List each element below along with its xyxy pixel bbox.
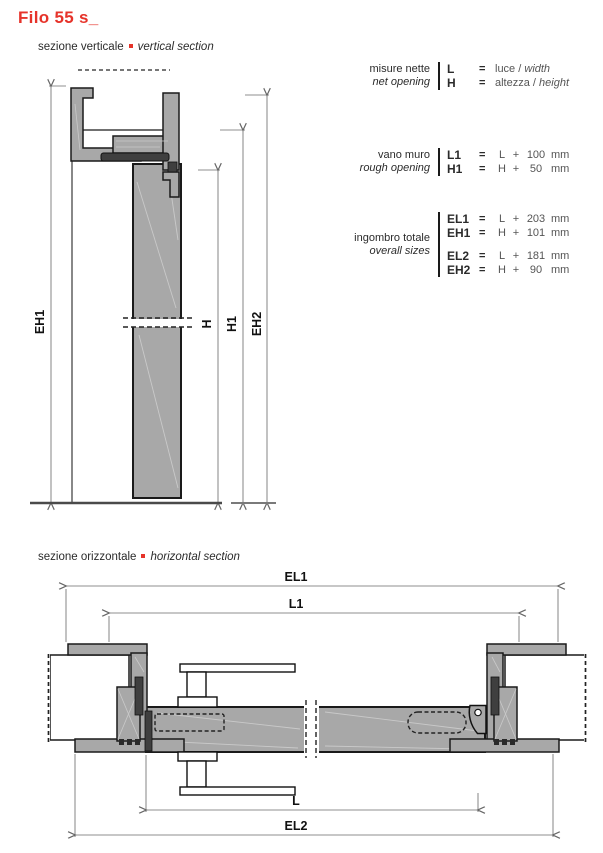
- dim-label-el1: EL1: [285, 570, 308, 584]
- track-section-bottom: [178, 752, 295, 795]
- vertical-section-caption: sezione verticalevertical section: [38, 41, 214, 53]
- section-bullet-icon: [141, 554, 145, 558]
- right-guide-notch: [494, 739, 499, 745]
- horizontal-section-label-it: sezione orizzontale: [38, 551, 136, 563]
- formula-amount: 181: [523, 249, 549, 263]
- equals-sign: =: [479, 148, 495, 162]
- formula-base: H: [495, 162, 509, 176]
- formula-op: +: [509, 249, 523, 263]
- measure-symbol: EL1: [447, 212, 479, 226]
- horizontal-section-caption: sezione orizzontalehorizontal section: [38, 551, 240, 563]
- dimension-h: [198, 170, 220, 503]
- horizontal-section-label-en: horizontal section: [150, 551, 240, 563]
- equals-sign: =: [479, 226, 495, 240]
- value-separator: /: [518, 63, 521, 75]
- formula-base: L: [495, 148, 509, 162]
- value-en: width: [524, 63, 550, 75]
- dimension-el2: [75, 754, 553, 837]
- formula-amount: 101: [523, 226, 549, 240]
- dim-label-h: H: [200, 319, 214, 328]
- vertical-section-label-en: vertical section: [138, 41, 214, 53]
- formula-unit: mm: [551, 162, 569, 176]
- measure-symbol: L1: [447, 148, 479, 162]
- measure-row: EL2 = L + 181 mm: [447, 249, 569, 263]
- group-label-it: misure nette: [352, 63, 430, 76]
- measure-row: H = altezza / height: [447, 76, 569, 90]
- measure-row: EH2 = H + 90 mm: [447, 263, 569, 277]
- formula-unit: mm: [551, 249, 569, 263]
- formula-unit: mm: [551, 212, 569, 226]
- value-separator: /: [533, 77, 536, 89]
- measure-row: L = luce / width: [447, 62, 569, 76]
- group-label-it: ingombro totale: [352, 232, 430, 245]
- formula-amount: 203: [523, 212, 549, 226]
- formula-amount: 50: [523, 162, 549, 176]
- roller-carriage: [101, 153, 169, 161]
- measure-symbol: EH2: [447, 263, 479, 277]
- technical-drawing: EH1 H H1 EH2 EL1 L1: [0, 0, 603, 853]
- door-top-fitting: [168, 162, 177, 172]
- track-section-top: [178, 664, 295, 707]
- dimension-eh1: [49, 86, 66, 503]
- door-edge-cap: [145, 711, 152, 751]
- left-guide-notch: [127, 739, 132, 745]
- measure-symbol: L: [447, 62, 479, 76]
- measure-row: EL1 = L + 203 mm: [447, 212, 569, 226]
- formula-op: +: [509, 162, 523, 176]
- dim-label-l: L: [292, 794, 300, 808]
- vertical-section-label-it: sezione verticale: [38, 41, 124, 53]
- equals-sign: =: [479, 212, 495, 226]
- dim-label-el2: EL2: [285, 819, 308, 833]
- group-label-en: net opening: [352, 76, 430, 89]
- measures-group-net-opening: misure nette net opening L = luce / widt…: [352, 62, 603, 90]
- formula-base: L: [495, 249, 509, 263]
- measure-row: H1 = H + 50 mm: [447, 162, 569, 176]
- left-guide-notch: [135, 739, 140, 745]
- left-guide-notch: [119, 739, 124, 745]
- equals-sign: =: [479, 76, 495, 90]
- dim-label-l1: L1: [289, 597, 304, 611]
- formula-base: L: [495, 212, 509, 226]
- measures-group-overall-sizes: ingombro totale overall sizes EL1 = L + …: [352, 212, 603, 277]
- group-label: vano muro rough opening: [352, 149, 438, 175]
- section-bullet-icon: [129, 44, 133, 48]
- dimension-l1: [109, 613, 519, 642]
- vertical-section-drawing: EH1 H H1 EH2: [30, 70, 276, 503]
- formula-op: +: [509, 226, 523, 240]
- panel-break-vertical: [123, 318, 193, 327]
- value-en: height: [539, 77, 569, 89]
- formula-base: H: [495, 263, 509, 277]
- measure-symbol: EH1: [447, 226, 479, 240]
- measures-group-rough-opening: vano muro rough opening L1 = L + 100 mm …: [352, 148, 603, 176]
- measure-row: L1 = L + 100 mm: [447, 148, 569, 162]
- door-panel-vertical: [133, 164, 181, 498]
- catalog-page: EH1 H H1 EH2 EL1 L1: [0, 0, 603, 853]
- formula-op: +: [509, 212, 523, 226]
- group-label-it: vano muro: [352, 149, 430, 162]
- formula-unit: mm: [551, 263, 569, 277]
- right-guide-notch: [502, 739, 507, 745]
- value-it: luce: [495, 63, 515, 75]
- right-seal-strip: [491, 677, 499, 715]
- formula-op: +: [509, 263, 523, 277]
- formula-amount: 100: [523, 148, 549, 162]
- formula-base: H: [495, 226, 509, 240]
- equals-sign: =: [479, 162, 495, 176]
- panel-break-horizontal: [304, 700, 319, 758]
- group-label-en: rough opening: [352, 162, 430, 175]
- group-label-en: overall sizes: [352, 245, 430, 258]
- right-guide-notch: [510, 739, 515, 745]
- equals-sign: =: [479, 263, 495, 277]
- equals-sign: =: [479, 249, 495, 263]
- formula-op: +: [509, 148, 523, 162]
- equals-sign: =: [479, 62, 495, 76]
- formula-unit: mm: [551, 226, 569, 240]
- dim-label-h1: H1: [225, 316, 239, 332]
- dimension-el1: [66, 586, 558, 642]
- formula-unit: mm: [551, 148, 569, 162]
- dim-label-eh1: EH1: [33, 310, 47, 334]
- group-label: ingombro totale overall sizes: [352, 232, 438, 258]
- value-it: altezza: [495, 77, 530, 89]
- dimension-eh2: [245, 95, 269, 503]
- measure-symbol: EL2: [447, 249, 479, 263]
- measure-row: EH1 = H + 101 mm: [447, 226, 569, 240]
- track-profile: [113, 136, 170, 153]
- horizontal-section-drawing: EL1 L1: [49, 570, 586, 837]
- head-frame-profile: [71, 88, 179, 197]
- page-title: Filo 55 s_: [18, 8, 98, 28]
- formula-amount: 90: [523, 263, 549, 277]
- dim-label-eh2: EH2: [250, 312, 264, 336]
- measure-symbol: H: [447, 76, 479, 90]
- group-label: misure nette net opening: [352, 63, 438, 89]
- left-seal-strip: [135, 677, 143, 715]
- measure-symbol: H1: [447, 162, 479, 176]
